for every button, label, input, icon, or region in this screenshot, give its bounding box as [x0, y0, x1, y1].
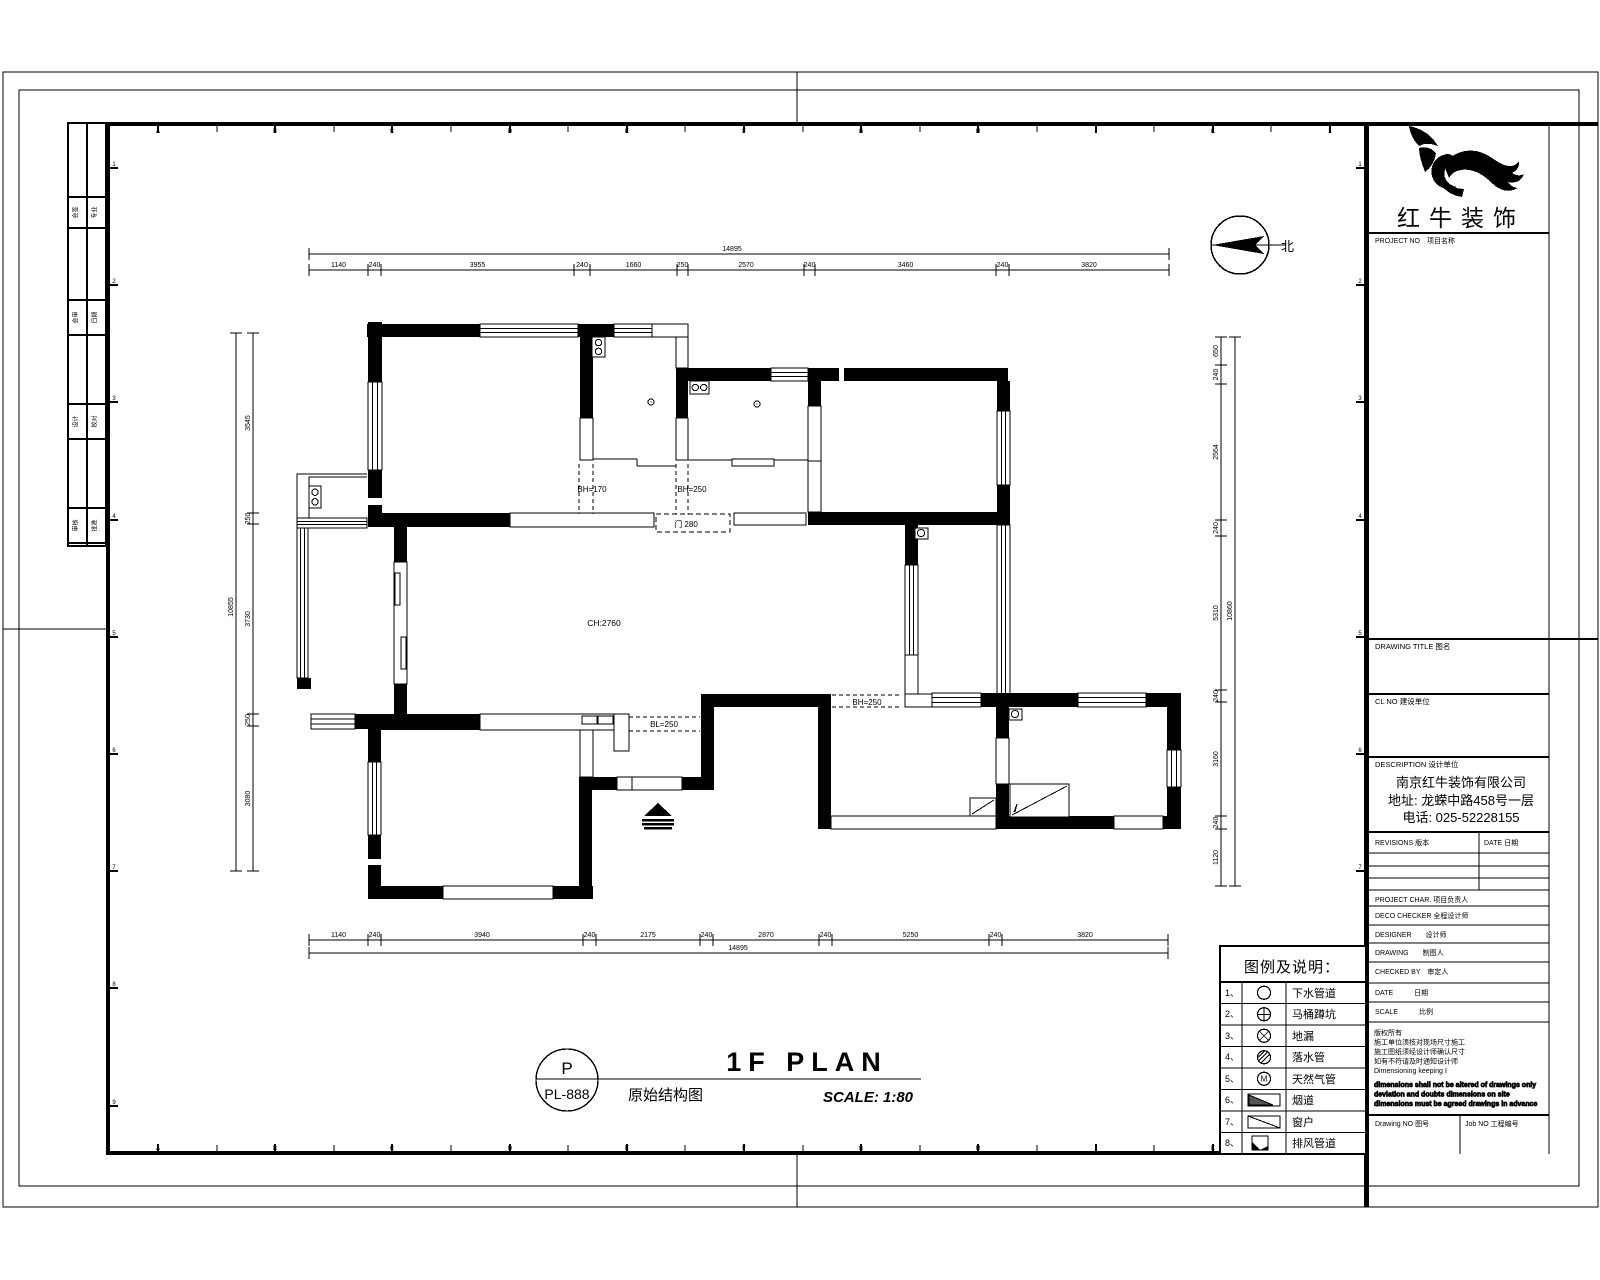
svg-text:4、: 4、 [1225, 1052, 1239, 1062]
svg-text:7、: 7、 [1225, 1117, 1239, 1127]
svg-text:CHECKED BY 审定人: CHECKED BY 审定人 [1375, 967, 1448, 976]
svg-text:CH:2760: CH:2760 [587, 618, 621, 628]
svg-text:地漏: 地漏 [1292, 1030, 1314, 1043]
svg-text:3820: 3820 [1077, 932, 1093, 939]
svg-text:6、: 6、 [1225, 1095, 1239, 1105]
svg-text:dimensions must be agreed draw: dimensions must be agreed drawings in ad… [1374, 1101, 1537, 1108]
svg-text:250: 250 [677, 262, 689, 269]
svg-text:H: H [976, 1146, 980, 1152]
svg-text:BH=250: BH=250 [677, 485, 707, 494]
svg-text:F: F [742, 129, 746, 135]
svg-text:1140: 1140 [331, 932, 346, 939]
svg-text:E: E [625, 129, 629, 135]
svg-text:240: 240 [1213, 522, 1220, 534]
svg-text:1660: 1660 [626, 262, 642, 269]
svg-text:SCALE: 1:80: SCALE: 1:80 [823, 1089, 914, 1106]
svg-text:1120: 1120 [1213, 850, 1220, 865]
svg-text:BH=250: BH=250 [852, 698, 882, 707]
svg-text:DECO CHECKER 全程设计师: DECO CHECKER 全程设计师 [1375, 911, 1468, 920]
svg-text:PROJECT NO 项目名称: PROJECT NO 项目名称 [1375, 236, 1455, 245]
svg-text:250: 250 [245, 513, 252, 525]
svg-text:5310: 5310 [1213, 605, 1220, 621]
svg-text:Job NO 工程编号: Job NO 工程编号 [1465, 1119, 1519, 1128]
svg-text:南京红牛装饰有限公司: 南京红牛装饰有限公司 [1396, 775, 1526, 790]
svg-text:J: J [1095, 1146, 1098, 1152]
svg-text:240: 240 [369, 932, 381, 939]
svg-text:电话: 025-52228155: 电话: 025-52228155 [1402, 810, 1519, 825]
svg-text:A: A [156, 129, 160, 135]
svg-text:240: 240 [369, 262, 381, 269]
svg-text:F: F [742, 1146, 746, 1152]
svg-text:地址: 龙蝾中路458号一层: 地址: 龙蝾中路458号一层 [1388, 793, 1534, 808]
svg-text:下水管道: 下水管道 [1292, 986, 1336, 1000]
svg-text:10860: 10860 [1227, 601, 1234, 621]
svg-text:校对: 校对 [91, 415, 99, 427]
svg-text:3730: 3730 [245, 611, 252, 627]
svg-text:240: 240 [1213, 817, 1220, 829]
svg-text:K: K [1211, 1146, 1215, 1152]
svg-text:dimensions shall not be altere: dimensions shall not be altered of drawi… [1374, 1082, 1536, 1089]
svg-text:版权所有: 版权所有 [1374, 1028, 1402, 1037]
svg-text:落水管: 落水管 [1292, 1050, 1325, 1064]
svg-text:门 280: 门 280 [674, 519, 698, 529]
svg-text:2570: 2570 [738, 262, 754, 269]
svg-text:250: 250 [245, 714, 252, 726]
svg-text:2175: 2175 [640, 932, 656, 939]
svg-text:天然气管: 天然气管 [1292, 1072, 1336, 1086]
svg-text:J: J [1095, 129, 1098, 135]
svg-text:B: B [273, 129, 277, 135]
svg-text:3、: 3、 [1225, 1031, 1239, 1041]
svg-text:DESCRIPTION 设计单位: DESCRIPTION 设计单位 [1375, 759, 1459, 769]
svg-text:排风管道: 排风管道 [1292, 1136, 1336, 1150]
svg-text:3820: 3820 [1081, 262, 1097, 269]
svg-text:1、: 1、 [1225, 988, 1239, 998]
svg-text:CL NO 建设单位: CL NO 建设单位 [1375, 696, 1430, 706]
svg-text:B: B [273, 1146, 277, 1152]
svg-text:马桶蹲坑: 马桶蹲坑 [1292, 1007, 1336, 1021]
svg-text:图例及说明：: 图例及说明： [1244, 959, 1340, 976]
svg-text:DESIGNER 设计师: DESIGNER 设计师 [1375, 930, 1447, 939]
svg-text:240: 240 [804, 262, 816, 269]
svg-text:8、: 8、 [1225, 1138, 1239, 1148]
svg-text:Dimensioning keeping Ⅰ: Dimensioning keeping Ⅰ [1374, 1068, 1447, 1075]
svg-text:设计: 设计 [72, 415, 80, 427]
svg-text:施工图纸须经设计师确认尺寸: 施工图纸须经设计师确认尺寸 [1374, 1047, 1465, 1056]
svg-text:批准: 批准 [91, 519, 99, 531]
svg-text:BL=250: BL=250 [650, 720, 678, 729]
svg-text:10855: 10855 [228, 597, 235, 617]
svg-text:14895: 14895 [722, 246, 742, 253]
svg-text:P: P [561, 1059, 572, 1078]
svg-text:C: C [390, 129, 395, 135]
svg-text:3955: 3955 [470, 262, 486, 269]
svg-text:14895: 14895 [728, 945, 748, 952]
svg-text:M: M [1261, 1074, 1268, 1083]
svg-text:2564: 2564 [1213, 444, 1220, 460]
svg-text:D: D [508, 129, 513, 135]
svg-text:烟道: 烟道 [1292, 1093, 1314, 1107]
svg-text:3080: 3080 [245, 791, 252, 807]
svg-text:3545: 3545 [245, 415, 252, 431]
svg-text:Drawing NO 图号: Drawing NO 图号 [1375, 1120, 1429, 1128]
svg-text:240: 240 [576, 262, 588, 269]
svg-text:240: 240 [990, 932, 1002, 939]
svg-text:A: A [156, 1146, 160, 1152]
svg-text:红牛装饰: 红牛装饰 [1397, 205, 1525, 231]
svg-text:240: 240 [820, 932, 832, 939]
svg-text:如有不符请及时通知设计师: 如有不符请及时通知设计师 [1374, 1057, 1458, 1066]
svg-text:3940: 3940 [474, 932, 490, 939]
svg-text:5、: 5、 [1225, 1074, 1239, 1084]
svg-text:1F PLAN: 1F PLAN [726, 1047, 888, 1077]
svg-text:会审: 会审 [72, 311, 80, 323]
svg-text:REVISIONS 版本: REVISIONS 版本 [1375, 838, 1429, 847]
svg-text:1140: 1140 [331, 262, 346, 269]
svg-text:650: 650 [1213, 345, 1220, 357]
svg-text:原始结构图: 原始结构图 [628, 1087, 703, 1104]
svg-text:E: E [625, 1146, 629, 1152]
svg-text:2、: 2、 [1225, 1009, 1239, 1019]
svg-text:专业: 专业 [91, 206, 99, 218]
svg-text:会签: 会签 [72, 206, 80, 218]
svg-text:G: G [859, 129, 864, 135]
svg-text:BH=170: BH=170 [577, 485, 607, 494]
svg-text:3460: 3460 [898, 262, 914, 269]
svg-text:2870: 2870 [758, 932, 774, 939]
svg-text:K: K [1211, 129, 1215, 135]
svg-text:SCALE 比例: SCALE 比例 [1375, 1007, 1433, 1016]
svg-text:PL-888: PL-888 [544, 1086, 589, 1102]
svg-text:5250: 5250 [903, 932, 919, 939]
svg-text:日期: 日期 [91, 311, 99, 323]
svg-text:240: 240 [1213, 690, 1220, 702]
svg-text:施工单位须核对现场尺寸施工: 施工单位须核对现场尺寸施工 [1374, 1038, 1465, 1047]
svg-text:3160: 3160 [1213, 751, 1220, 767]
svg-text:240: 240 [701, 932, 713, 939]
svg-text:240: 240 [584, 932, 596, 939]
svg-text:G: G [859, 1146, 864, 1152]
svg-text:审核: 审核 [72, 519, 80, 531]
svg-text:窗户: 窗户 [1292, 1115, 1314, 1129]
svg-text:DRAWING 制图人: DRAWING 制图人 [1375, 948, 1444, 957]
svg-text:240: 240 [1213, 369, 1220, 381]
svg-text:C: C [390, 1146, 395, 1152]
svg-text:DATE 日期: DATE 日期 [1375, 989, 1428, 997]
svg-text:DATE 日期: DATE 日期 [1484, 839, 1518, 847]
svg-text:D: D [508, 1146, 513, 1152]
svg-text:DRAWING TITLE 图名: DRAWING TITLE 图名 [1375, 641, 1450, 651]
svg-text:H: H [976, 129, 980, 135]
svg-text:deviation and doubts dimension: deviation and doubts dimensions on site [1374, 1092, 1510, 1099]
svg-text:240: 240 [997, 262, 1009, 269]
svg-text:PROJECT CHAR. 项目负责人: PROJECT CHAR. 项目负责人 [1375, 895, 1468, 904]
svg-text:北: 北 [1281, 239, 1294, 254]
